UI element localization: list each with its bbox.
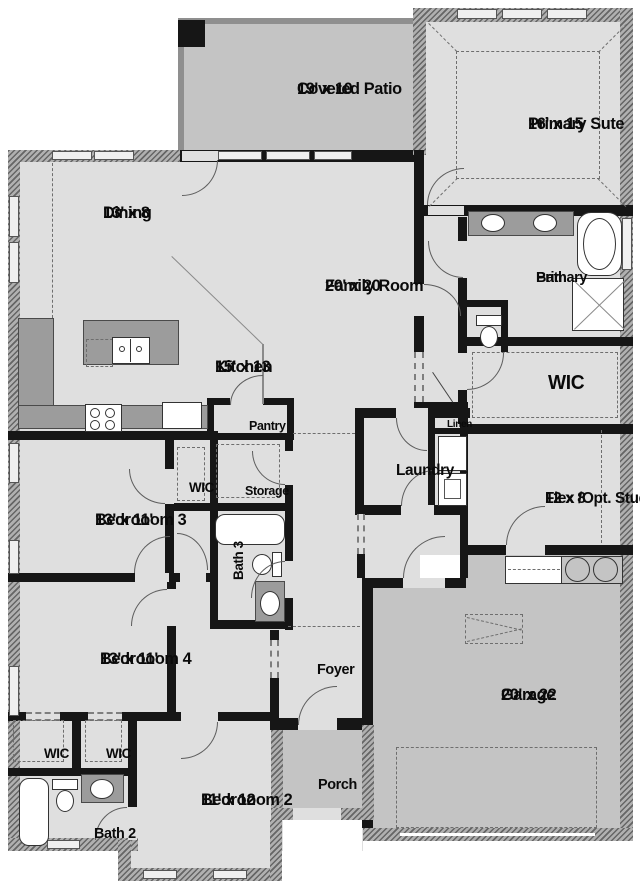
room-name: Linen	[447, 419, 472, 430]
opening	[506, 545, 545, 555]
opening	[167, 589, 176, 626]
room-dims: 20' x 20	[325, 277, 380, 295]
water-heater-icon	[565, 557, 590, 582]
vanity-sink-icon	[533, 214, 557, 232]
burner	[105, 408, 115, 418]
wall-strip-stub1	[174, 573, 180, 582]
opening	[285, 561, 293, 598]
floor-plan: Covered Patio 19' x 10 Primary Sute 16' …	[0, 0, 640, 887]
window	[457, 9, 497, 19]
opening	[285, 451, 293, 485]
room-name: Porch	[318, 777, 357, 793]
garage-door-opening	[400, 833, 595, 836]
patio-edge-top	[178, 18, 420, 24]
cased-opening	[414, 352, 424, 402]
water-heater-icon	[593, 557, 618, 582]
burner	[90, 408, 100, 418]
faucet-dot	[136, 346, 142, 352]
room-name: WIC	[44, 746, 69, 761]
window	[94, 151, 134, 160]
room-name: Bath 2	[94, 826, 136, 842]
window	[314, 151, 352, 160]
room-dims: 13' x 11'	[95, 511, 153, 529]
window	[9, 242, 19, 283]
window	[9, 666, 19, 716]
toilet-icon	[476, 315, 502, 326]
wall-storage-bath3	[210, 503, 293, 511]
mask	[283, 820, 362, 887]
window	[9, 443, 19, 483]
wall-wic-divider	[72, 712, 81, 768]
opening	[403, 578, 445, 588]
room-dims: 13' x 8	[103, 204, 150, 222]
dishwasher	[86, 339, 113, 367]
garage-steps-icon	[505, 556, 563, 584]
patio-pillar	[178, 20, 205, 47]
bathtub-icon	[215, 514, 285, 545]
burner	[105, 420, 115, 430]
window	[502, 9, 542, 19]
cased-opening	[357, 514, 365, 554]
kitchen-island-sink-icon	[112, 337, 150, 364]
toilet-bowl	[56, 790, 74, 812]
burner	[90, 420, 100, 430]
toilet-icon	[52, 779, 78, 790]
porch-wall-right	[362, 725, 374, 820]
window	[622, 218, 632, 270]
mask	[8, 851, 118, 887]
faucet-dot	[119, 346, 125, 352]
room-dims: 11' x 12	[201, 791, 255, 809]
room-dims: 19' x 10	[297, 80, 352, 98]
garage-door-icon	[396, 747, 597, 828]
room-name: Storage	[245, 484, 289, 498]
vanity-sink-icon	[481, 214, 505, 232]
room-dims: 13' x 11'	[100, 650, 158, 668]
window	[47, 840, 80, 849]
room-name: Pantry	[249, 419, 286, 433]
window	[9, 540, 19, 574]
mask	[363, 841, 633, 887]
opening	[458, 353, 467, 390]
room-name: WIC	[189, 480, 214, 495]
window	[547, 9, 587, 19]
room-name: WIC	[106, 746, 131, 761]
window	[52, 151, 92, 160]
opening	[428, 206, 464, 215]
exterior-wall-bed2-bottom	[118, 868, 277, 881]
hall-opening-line	[293, 433, 355, 434]
window	[9, 196, 19, 237]
mask	[118, 881, 278, 887]
refrigerator-icon	[162, 402, 202, 429]
room-dims: 16' x 15	[528, 115, 583, 133]
opening	[165, 469, 174, 504]
opening	[181, 712, 218, 721]
wall-pantry-bottom	[207, 433, 293, 440]
kitchen-counter-left	[18, 318, 54, 410]
toilet-bowl	[480, 326, 498, 348]
wall-laundry-left	[355, 415, 364, 515]
wall-wic-flex	[466, 424, 633, 434]
exterior-wall-bed2-right	[270, 820, 282, 881]
room-name: WIC	[548, 373, 584, 395]
bathtub-icon	[19, 778, 49, 846]
room-dims: 15' x 13	[215, 358, 270, 376]
wall-flex-garage	[466, 545, 633, 555]
exterior-wall-suite-left	[413, 8, 426, 155]
step-line	[508, 569, 560, 570]
porch-wall-stub-right	[341, 808, 362, 820]
window	[266, 151, 310, 160]
wall-bed3-top	[8, 431, 210, 440]
porch-floor	[283, 730, 362, 808]
window	[143, 870, 177, 879]
wall-wc-primary-v	[501, 307, 508, 352]
room-name: Bath 3	[231, 541, 246, 580]
room-name: Laundry	[396, 462, 454, 479]
wall-mud-stub	[357, 554, 365, 578]
opening	[135, 573, 169, 582]
foyer-opening-line	[288, 626, 360, 627]
dryer-inner	[444, 479, 461, 499]
opening	[396, 408, 428, 418]
cased-opening	[270, 640, 279, 678]
dining-ceiling-line	[52, 163, 53, 318]
porch-wall-stub-left	[271, 808, 293, 820]
vanity-sink-icon	[90, 779, 114, 799]
tub-basin	[583, 218, 616, 270]
room-name: Foyer	[317, 662, 354, 678]
window	[218, 151, 262, 160]
room-dims: 20' x 22	[501, 686, 556, 704]
window	[213, 870, 247, 879]
sink-divider	[130, 339, 131, 362]
room-name: Bath	[536, 270, 566, 286]
flex-option-line	[601, 430, 602, 543]
room-dims: 12 x 8	[545, 490, 585, 507]
opening	[401, 505, 434, 515]
